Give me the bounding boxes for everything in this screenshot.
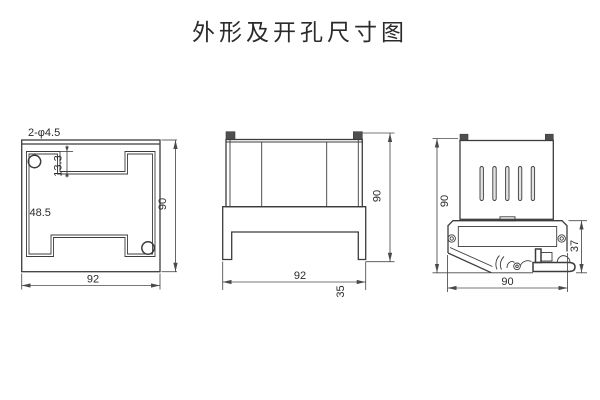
- vent-slot: [531, 167, 534, 201]
- clip-pivot: [514, 263, 521, 270]
- side-depth-dim: 35: [335, 285, 347, 297]
- rear-width-dim: 90: [501, 276, 513, 288]
- screw-left: [448, 235, 455, 242]
- din-rail-hook: [536, 249, 542, 263]
- rear-tab-right: [545, 134, 553, 140]
- screw-right-center: [560, 237, 563, 240]
- notch-depth-dim: 13.3: [53, 155, 65, 176]
- rear-bracket-outline: [448, 221, 567, 253]
- side-bezel: [223, 207, 366, 260]
- side-tab-left: [226, 132, 235, 140]
- clip-spring: [521, 261, 532, 266]
- clip-spring: [500, 257, 504, 270]
- rear-view: 90 37 90: [433, 134, 588, 292]
- side-view: 92 90 35: [223, 132, 395, 298]
- vent-slot: [518, 167, 521, 201]
- mounting-hole-top-left: [28, 155, 40, 167]
- rear-tab-left: [460, 134, 468, 140]
- cutout-view: 2-φ4.5 13.3 48.5 92 90: [22, 127, 177, 290]
- side-width-dim: 92: [294, 270, 306, 282]
- clip-pivot-center: [516, 265, 519, 268]
- cutout-width-dim: 92: [87, 274, 99, 286]
- vent-slot: [493, 167, 496, 201]
- cutout-outline-inner: [29, 154, 153, 254]
- cutout-outer-rect: [22, 140, 160, 272]
- notch-arrow-top: [65, 147, 69, 152]
- dimension-drawing: 2-φ4.5 13.3 48.5 92 90: [0, 0, 600, 400]
- holes-label: 2-φ4.5: [28, 127, 60, 139]
- din-rail-web: [541, 253, 552, 262]
- rear-height-dim: 90: [439, 195, 451, 207]
- bracket-height-dim: 37: [569, 240, 581, 252]
- din-rail-base: [533, 263, 575, 272]
- screw-right: [558, 235, 565, 242]
- cutout-outline-outer: [27, 152, 156, 257]
- clip-spring: [496, 256, 500, 270]
- side-body: [226, 140, 362, 207]
- din-rail-clamp: [557, 256, 570, 263]
- side-height-dim: 90: [372, 190, 384, 202]
- screw-left-center: [450, 237, 453, 240]
- vent-slot: [480, 167, 483, 201]
- side-tab-right: [353, 132, 362, 140]
- terminal-band: [458, 227, 556, 247]
- vent-slot: [506, 167, 509, 201]
- dimension-sheet: 外形及开孔尺寸图 2-φ4.5 13.3 4: [0, 0, 600, 400]
- section-height-dim: 48.5: [30, 207, 51, 219]
- cutout-height-dim: 90: [157, 198, 169, 210]
